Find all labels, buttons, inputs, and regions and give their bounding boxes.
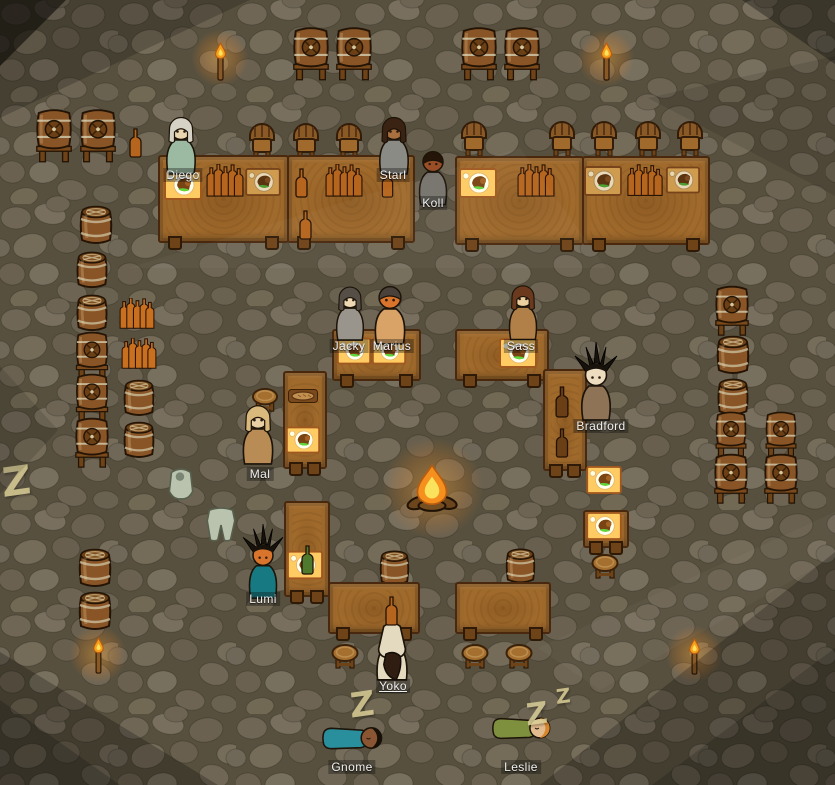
meal[interactable] xyxy=(286,424,320,456)
barrel[interactable] xyxy=(78,204,114,246)
beer-stack[interactable] xyxy=(121,338,157,370)
bread[interactable] xyxy=(288,389,318,403)
pawn-label-mal[interactable]: Mal xyxy=(247,467,274,481)
pawn-marius[interactable] xyxy=(369,278,411,346)
campfire[interactable] xyxy=(404,460,460,512)
pawn-bradford[interactable] xyxy=(573,342,619,422)
pawn-label-diego[interactable]: Diego xyxy=(163,168,202,182)
beer-stack[interactable] xyxy=(119,298,155,330)
pawn-label-leslie[interactable]: Leslie xyxy=(501,760,541,774)
dining-chair[interactable] xyxy=(547,113,577,157)
fermenting-barrel[interactable] xyxy=(709,452,753,504)
fermenting-barrel[interactable] xyxy=(709,410,753,458)
fermenting-barrel[interactable] xyxy=(33,106,75,164)
apparel-shirt[interactable] xyxy=(167,466,195,502)
pawn-label-starl[interactable]: Starl xyxy=(377,168,410,182)
fermenting-barrel[interactable] xyxy=(70,372,114,422)
beer-stack[interactable] xyxy=(325,164,363,198)
fermenting-barrel[interactable] xyxy=(501,24,543,82)
barrel[interactable] xyxy=(122,420,156,460)
pawn-starl[interactable] xyxy=(374,110,414,176)
fermenting-barrel[interactable] xyxy=(333,24,375,82)
barrel[interactable] xyxy=(714,334,752,376)
meal[interactable] xyxy=(245,168,281,196)
game-viewport: Diego Starl Koll Jacky Marius Sass Mal B… xyxy=(0,0,835,785)
beer-stack[interactable] xyxy=(206,164,244,198)
fermenting-barrel[interactable] xyxy=(458,24,500,82)
sleep-z-icon: Z xyxy=(349,686,376,723)
dining-chair[interactable] xyxy=(291,115,321,159)
sleep-z-icon: Z xyxy=(555,685,571,707)
barrel[interactable] xyxy=(77,590,113,632)
beer-bottle[interactable] xyxy=(295,168,308,198)
meal[interactable] xyxy=(459,168,497,198)
fermenting-barrel[interactable] xyxy=(759,452,803,504)
meal[interactable] xyxy=(585,466,623,494)
stool[interactable] xyxy=(505,644,533,671)
beer-stack[interactable] xyxy=(627,164,663,198)
barrel[interactable] xyxy=(503,547,538,585)
meal[interactable] xyxy=(584,166,622,196)
beer-bottle[interactable] xyxy=(385,596,398,626)
fermenting-barrel[interactable] xyxy=(77,106,119,164)
meal[interactable] xyxy=(586,512,622,540)
torch[interactable] xyxy=(210,42,230,82)
pawn-lumi[interactable] xyxy=(240,524,286,600)
sleep-z-icon: Z xyxy=(1,460,33,504)
pawn-jacky[interactable] xyxy=(331,280,369,342)
pawn-label-sass[interactable]: Sass xyxy=(504,339,538,353)
meal[interactable] xyxy=(666,166,700,194)
pawn-label-bradford[interactable]: Bradford xyxy=(573,419,628,433)
dining-chair[interactable] xyxy=(633,113,663,157)
torch[interactable] xyxy=(596,42,616,82)
wine-bottle[interactable] xyxy=(301,544,314,576)
pawn-label-yoko[interactable]: Yoko xyxy=(376,679,410,693)
beer-bottle[interactable] xyxy=(129,128,142,158)
pawn-label-gnome[interactable]: Gnome xyxy=(328,760,375,774)
stool[interactable] xyxy=(331,644,359,671)
torch[interactable] xyxy=(88,637,108,675)
beer-bottle[interactable] xyxy=(555,428,569,458)
dining-chair[interactable] xyxy=(247,115,277,159)
barrel[interactable] xyxy=(122,378,156,418)
stool[interactable] xyxy=(591,554,619,581)
beer-bottle[interactable] xyxy=(299,210,312,240)
dining-chair[interactable] xyxy=(675,113,705,157)
beer-stack[interactable] xyxy=(517,164,555,198)
barrel[interactable] xyxy=(74,293,110,333)
pawn-label-lumi[interactable]: Lumi xyxy=(246,592,280,606)
torch[interactable] xyxy=(684,638,704,676)
beer-bottle[interactable] xyxy=(555,386,569,418)
pawn-mal[interactable] xyxy=(237,398,279,466)
fermenting-barrel[interactable] xyxy=(290,24,332,82)
dining-chair[interactable] xyxy=(459,113,489,157)
dining-table[interactable] xyxy=(455,582,551,634)
fermenting-barrel[interactable] xyxy=(759,410,803,458)
pawn-label-jacky[interactable]: Jacky xyxy=(330,339,369,353)
apparel-pants[interactable] xyxy=(205,506,237,544)
sleep-z-icon: Z xyxy=(525,698,549,731)
dining-chair[interactable] xyxy=(334,115,364,159)
stool[interactable] xyxy=(461,644,489,671)
pawn-label-marius[interactable]: Marius xyxy=(370,339,414,353)
pawn-label-koll[interactable]: Koll xyxy=(419,196,447,210)
dining-chair[interactable] xyxy=(589,113,619,157)
fermenting-barrel[interactable] xyxy=(710,284,754,336)
fermenting-barrel[interactable] xyxy=(70,416,114,468)
barrel[interactable] xyxy=(74,250,110,290)
pawn-yoko[interactable] xyxy=(371,616,413,684)
barrel[interactable] xyxy=(77,547,113,589)
pawn-sass[interactable] xyxy=(504,278,542,342)
pawn-diego[interactable] xyxy=(160,110,202,176)
